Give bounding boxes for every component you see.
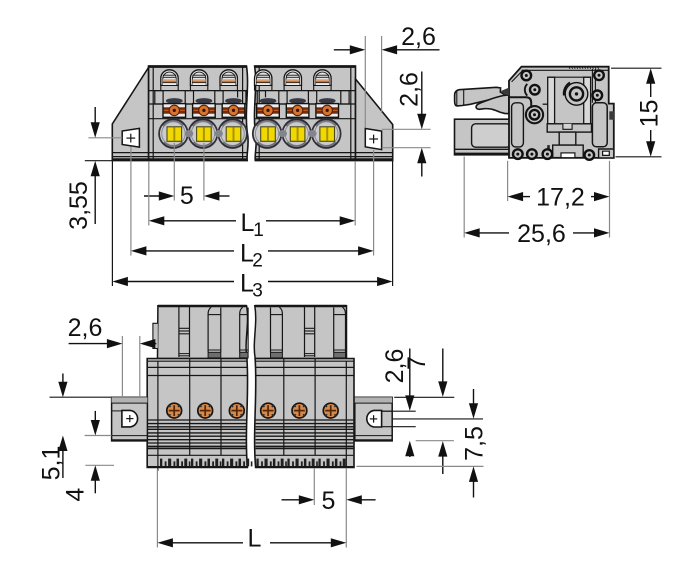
svg-text:2: 2 [252, 250, 263, 271]
svg-text:3,55: 3,55 [65, 181, 93, 230]
svg-text:5: 5 [322, 487, 336, 515]
svg-text:2,6: 2,6 [396, 72, 424, 107]
svg-text:25,6: 25,6 [517, 220, 566, 248]
svg-text:7: 7 [403, 356, 431, 370]
svg-text:2,6: 2,6 [401, 23, 436, 51]
svg-text:7,5: 7,5 [461, 426, 489, 461]
svg-text:15: 15 [636, 100, 664, 128]
svg-text:3: 3 [252, 281, 263, 302]
svg-text:L: L [248, 525, 262, 553]
svg-text:4: 4 [62, 488, 90, 502]
svg-text:17,2: 17,2 [536, 183, 585, 211]
svg-text:1: 1 [253, 220, 264, 241]
svg-text:2,6: 2,6 [68, 314, 103, 342]
svg-text:5,1: 5,1 [37, 446, 65, 481]
svg-text:5: 5 [180, 182, 194, 210]
